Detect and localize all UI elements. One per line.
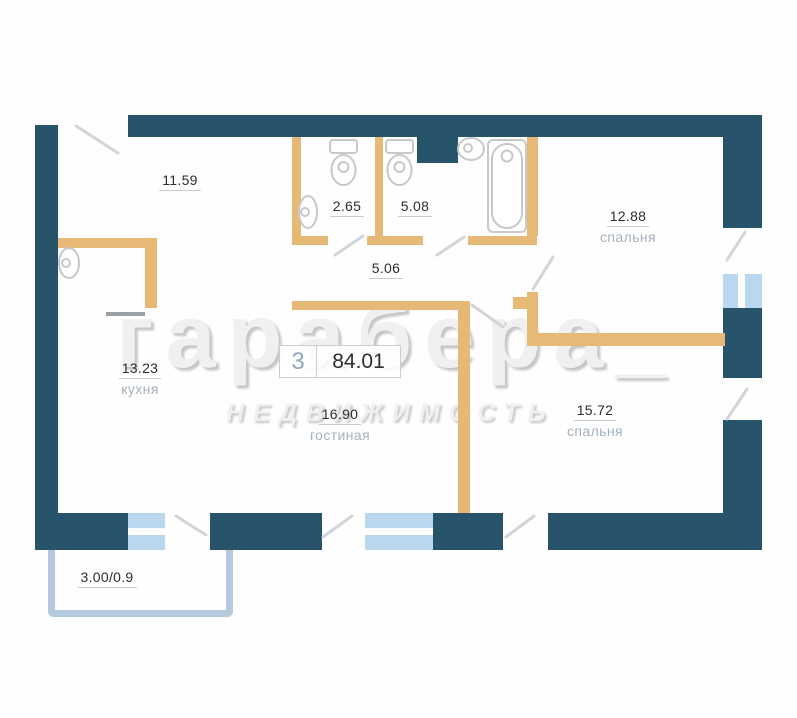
- room-area: 3.00/0.9: [78, 569, 137, 588]
- door-swing-kitchen-balcony: [176, 516, 206, 535]
- room-count: 3: [280, 346, 317, 377]
- door-swing-bathroom: [437, 237, 464, 255]
- door-swing-bedroom1: [533, 257, 553, 289]
- total-area-value: 84.01: [317, 350, 400, 374]
- room-name: спальня: [591, 229, 665, 245]
- room-area: 5.06: [369, 260, 403, 279]
- room-label-living: 16.90 гостиная: [303, 406, 377, 443]
- room-area: 12.88: [607, 208, 650, 227]
- door-swing-living: [472, 305, 503, 327]
- room-area: 5.08: [398, 198, 432, 217]
- toilet-icon: [330, 140, 357, 185]
- room-label-corridor: 5.06: [349, 260, 423, 279]
- total-area-badge: 3 84.01: [279, 345, 401, 378]
- room-name: гостиная: [303, 427, 377, 443]
- room-area: 16.90: [319, 406, 362, 425]
- room-area: 15.72: [574, 402, 617, 421]
- kitchen-sink-icon: [59, 248, 79, 278]
- door-swing-bedroom2-balcony: [727, 389, 747, 419]
- bathtub-icon: [488, 140, 526, 232]
- room-area: 11.59: [159, 172, 201, 191]
- door-swing-bedroom2-exterior: [506, 516, 534, 537]
- door-swing-bedroom1-balcony: [727, 232, 745, 260]
- bath-sink-icon: [458, 138, 484, 160]
- room-label-bedroom1: 12.88 спальня: [591, 208, 665, 245]
- room-label-balcony: 3.00/0.9: [65, 569, 149, 588]
- room-label-bedroom2: 15.72 спальня: [558, 402, 632, 439]
- room-label-bath: 5.08: [378, 198, 452, 217]
- room-label-kitchen: 13.23 кухня: [103, 360, 177, 397]
- room-label-wc: 2.65: [310, 198, 384, 217]
- floor-plan: гарабера_ НЕДВИЖИМОСТЬ: [0, 0, 797, 718]
- room-area: 13.23: [119, 360, 162, 379]
- room-name: спальня: [558, 423, 632, 439]
- room-label-hall: 11.59: [143, 172, 217, 191]
- door-swing-living-exterior: [323, 516, 352, 537]
- room-name: кухня: [103, 381, 177, 397]
- room-area: 2.65: [330, 198, 364, 217]
- door-swing-wc: [335, 236, 363, 255]
- toilet-icon: [386, 140, 413, 185]
- door-swing-entrance: [76, 126, 118, 153]
